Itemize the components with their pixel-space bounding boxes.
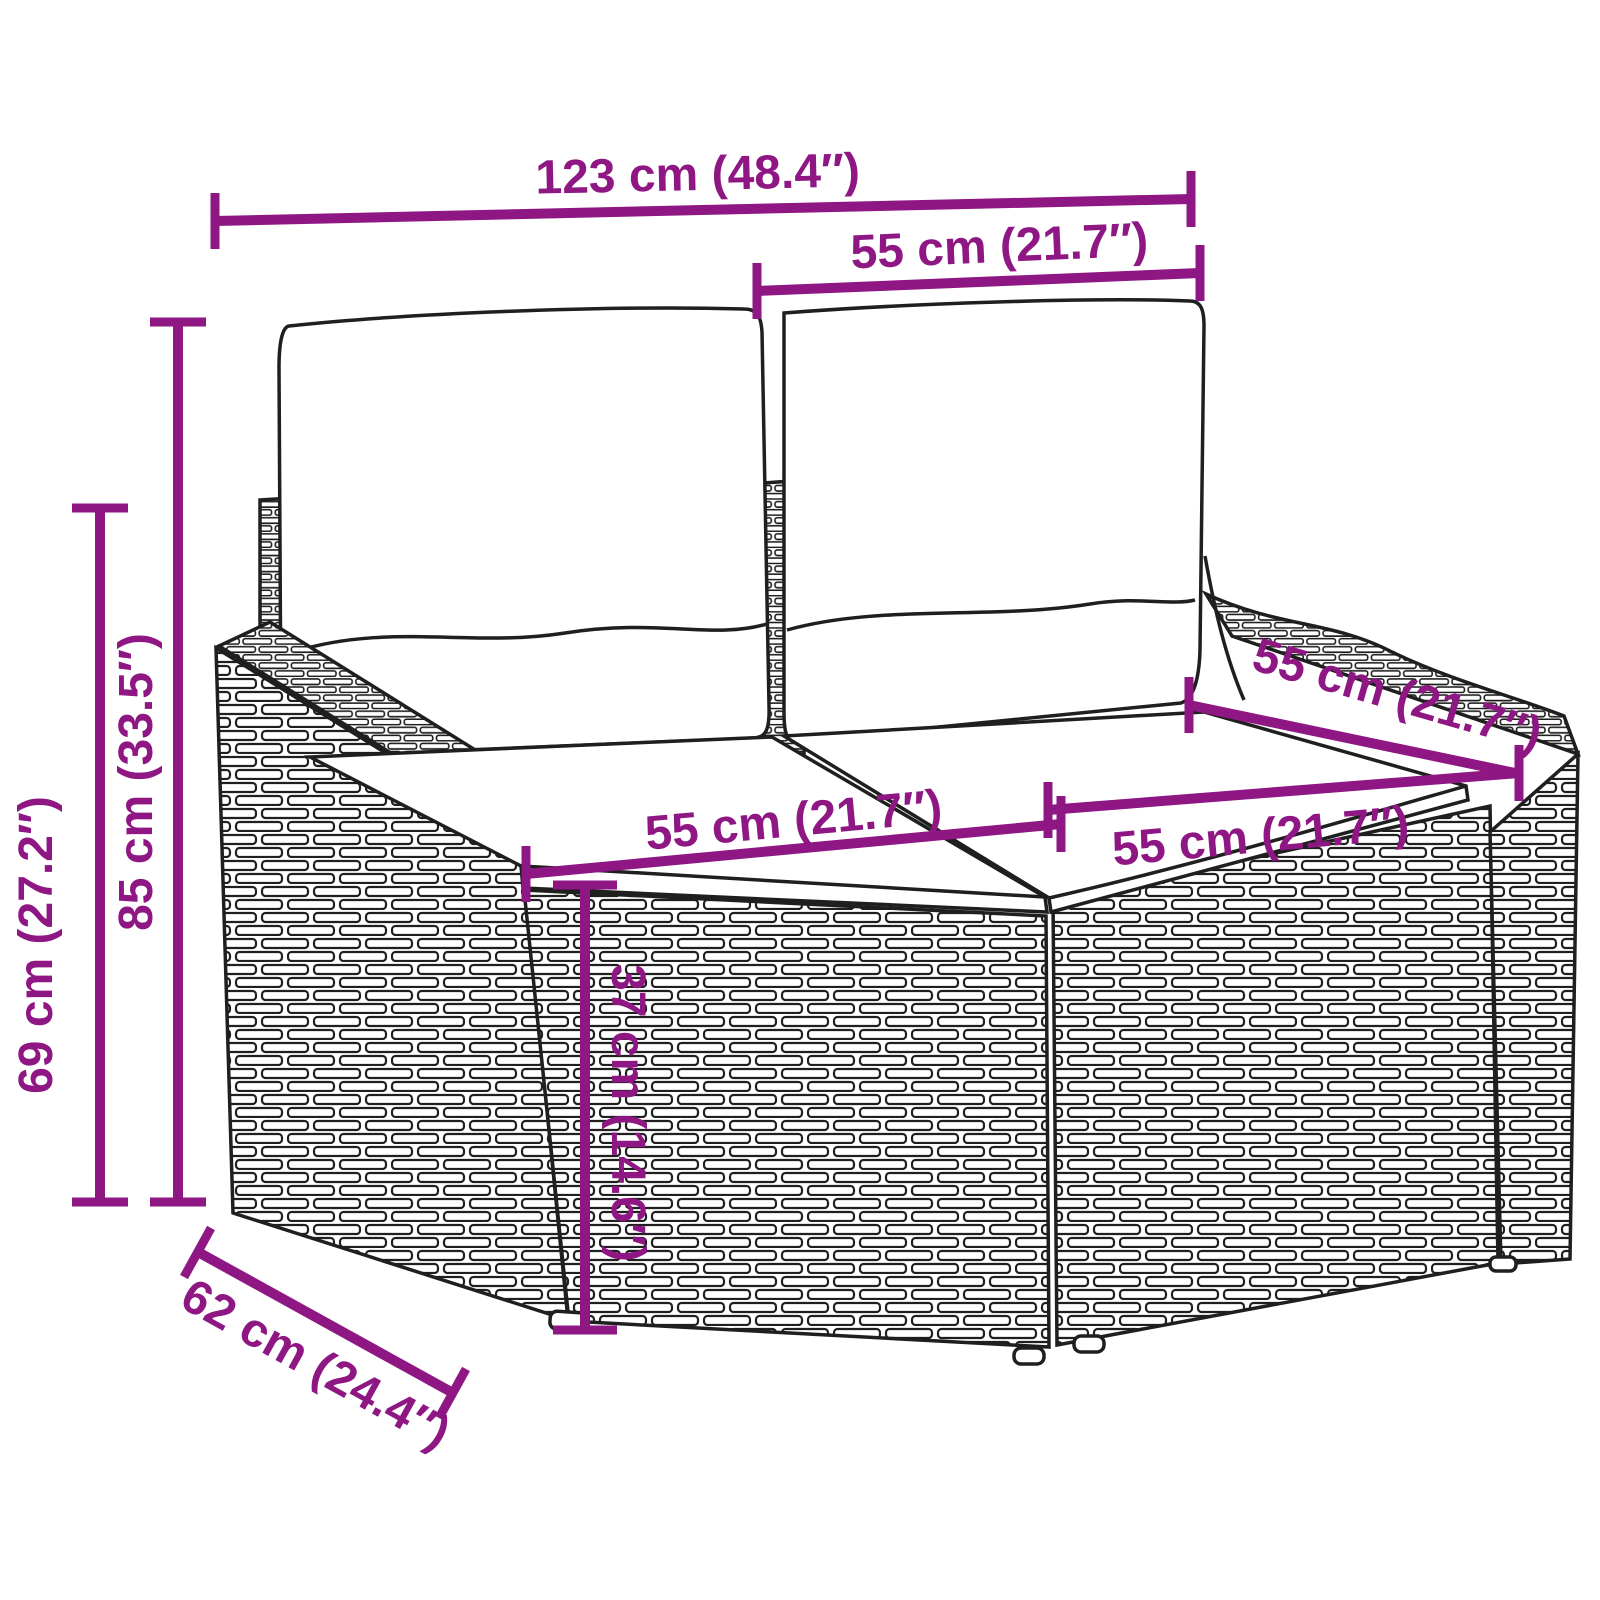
armrest-right-face [1490, 754, 1578, 1264]
diagram-canvas: 123 cm (48.4″) 55 cm (21.7″) 85 cm (33.5… [0, 0, 1600, 1600]
dimension-label-overall-depth: 62 cm (24.4″) [172, 1269, 458, 1460]
back-cushion-right [784, 300, 1204, 741]
sofa-foot [1490, 1257, 1516, 1271]
sofa-foot [1074, 1336, 1104, 1352]
dimension-label-overall-height: 85 cm (33.5″) [110, 633, 163, 931]
dimension-label-seat-height: 37 cm (14.6″) [601, 964, 654, 1262]
dimension-label-back-cushion-width: 55 cm (21.7″) [849, 214, 1149, 280]
sofa-dimension-diagram: 123 cm (48.4″) 55 cm (21.7″) 85 cm (33.5… [0, 0, 1600, 1600]
dimension-label-overall-width: 123 cm (48.4″) [535, 144, 861, 204]
sofa-foot [1014, 1348, 1044, 1364]
dimension-overall-height: 85 cm (33.5″) [110, 322, 206, 1202]
dimension-label-armrest-height: 69 cm (27.2″) [10, 796, 63, 1094]
